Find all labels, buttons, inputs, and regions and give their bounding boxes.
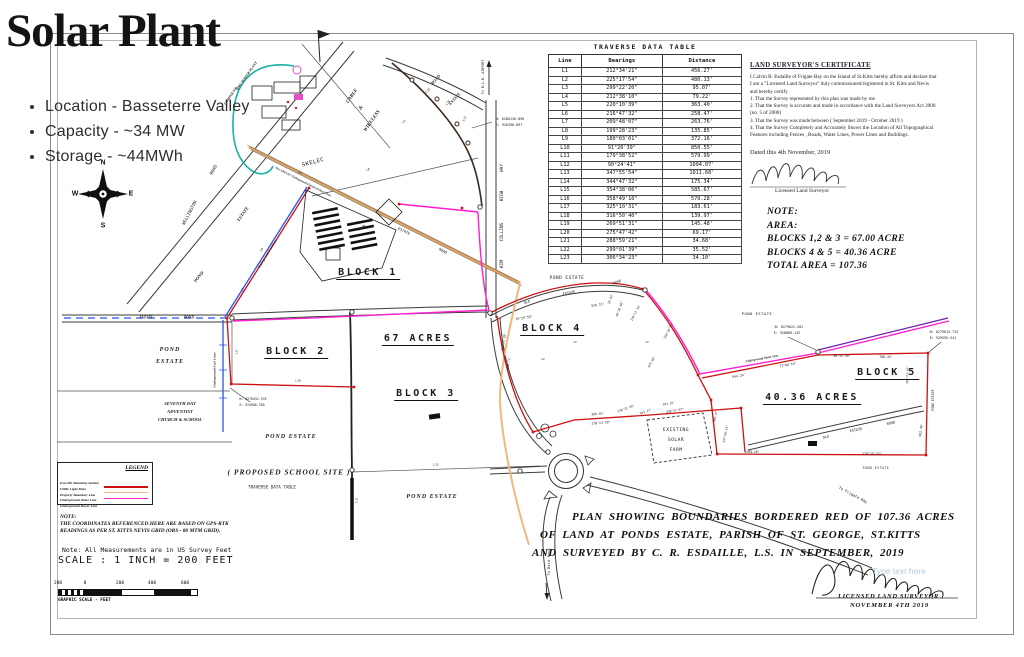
certificate-line: and hereby certify (750, 89, 976, 96)
table-row: L9180°03'01"372.16' (549, 136, 742, 145)
scale-tick: 600 (181, 581, 189, 586)
plan-statement-line: AND SURVEYED BY C. R. ESDAILLE, L.S. IN … (532, 544, 955, 562)
legend-title: LEGEND (62, 465, 148, 471)
table-row: L16358°49'10"570.28' (549, 195, 742, 204)
certificate-line: 4. That the Survey Completely and Accura… (750, 125, 976, 132)
licensed-surveyor-label: LICENSED LAND SURVEYOR (838, 593, 939, 600)
gps-note-line: NOTE: (60, 514, 229, 521)
table-row: L8199°28'23"135.85' (549, 127, 742, 136)
scale-bar: 2000200400600 GRAPHIC SCALE - FEET (58, 581, 198, 603)
table-row: L11179°38'52"579.99' (549, 153, 742, 162)
scale-tick: 200 (54, 581, 62, 586)
area-note-line: TOTAL AREA = 107.36 (767, 260, 905, 274)
table-row: L22299°01'39"35.52' (549, 246, 742, 255)
certificate-signature (752, 164, 839, 184)
type-text-watermark: Type text here (872, 566, 926, 576)
compass-w: W (72, 191, 79, 198)
area-note: NOTE:AREA:BLOCKS 1,2 & 3 = 67.00 ACREBLO… (767, 206, 905, 274)
table-row: L17325°10'31"183.61' (549, 204, 742, 213)
slide: BMC POWER PLANTCOMPOUNDCABLE&WIRELESSROA… (0, 0, 1024, 657)
table-row: L15354°38'06"585.67' (549, 187, 742, 196)
survey-date-label: NOVEMBER 4TH 2019 (850, 602, 929, 609)
scale-bar-caption: GRAPHIC SCALE - FEET (58, 598, 198, 603)
bullet-item: Capacity - ~34 MW (45, 123, 250, 141)
scale-tick: 200 (116, 581, 124, 586)
certificate-line: Features including Fences , Roads, Water… (750, 132, 976, 139)
table-row: L1212°34'21"456.27' (549, 68, 742, 77)
gps-note-line: READINGS AS PER ST. KITTS NEVIS GRID (OR… (60, 528, 229, 535)
scale-bar-ticks: 2000200400600 (58, 581, 198, 588)
table-row: L6216°47'32"258.47' (549, 110, 742, 119)
certificate-heading: LAND SURVEYOR'S CERTIFICATE (750, 62, 976, 69)
table-row: L20275°47'42"69.17' (549, 229, 742, 238)
certificate-line: 3. That the Survey was made between ( Se… (750, 118, 976, 125)
table-row: L23306°34'23"34.10' (549, 255, 742, 264)
plan-statement-line: OF LAND AT PONDS ESTATE, PARISH OF ST. G… (532, 526, 955, 544)
bullet-item: Location - Basseterre Valley (45, 98, 250, 116)
plan-statement-line: PLAN SHOWING BOUNDARIES BORDERED RED OF … (532, 508, 955, 526)
scale-tick: 0 (84, 581, 87, 586)
certificate-line: I am a "Licensed Land Surveyor" duly com… (750, 81, 976, 88)
table-row: L18316°50'40"139.97' (549, 212, 742, 221)
traverse-table-title: TRAVERSE DATA TABLE (548, 43, 742, 51)
compass-s: S (101, 223, 106, 230)
column-header: Bearings (581, 55, 662, 68)
certificate-line: 2. That the Survey is accurate and made … (750, 103, 976, 110)
table-row: L14344°47'32"175.34' (549, 178, 742, 187)
bullet-list: Location - Basseterre ValleyCapacity - ~… (30, 98, 250, 173)
table-row: L2225°17'54"480.13' (549, 76, 742, 85)
compass-e: E (129, 191, 134, 198)
certificate-line: I Calvin R. Esdaille of Frigate Bay on t… (750, 74, 976, 81)
legend-swatch (104, 498, 148, 499)
table-row: L19269°51'31"145.48' (549, 221, 742, 230)
scale-tick: 400 (148, 581, 156, 586)
column-header: Distance (662, 55, 741, 68)
legend-item: Underground Power Line (60, 495, 150, 501)
traverse-data-table: TRAVERSE DATA TABLE LineBearingsDistance… (548, 43, 742, 264)
table-row: L1290°24'41"1094.07' (549, 161, 742, 170)
table-row: L7209°48'07"263.76' (549, 119, 742, 128)
plan-statement: PLAN SHOWING BOUNDARIES BORDERED RED OF … (532, 508, 955, 562)
table-row: L1091°20'39"850.55' (549, 144, 742, 153)
page-title: Solar Plant (6, 4, 220, 58)
bullet-item: Storage - ~44MWh (45, 148, 250, 166)
table-row: L3299°22'20"95.07' (549, 85, 742, 94)
table-row: L21288°59'21"34.68' (549, 238, 742, 247)
scale-statement: SCALE : 1 INCH = 200 FEET (58, 555, 234, 566)
table-row: L4212°38'10"79.22' (549, 93, 742, 102)
traverse-table-header: LineBearingsDistance (549, 55, 742, 68)
legend-swatch (104, 492, 148, 493)
column-header: Line (549, 55, 582, 68)
area-note-line: BLOCKS 1,2 & 3 = 67.00 ACRE (767, 233, 905, 247)
certificate-line: 1. That the Survey represented by this p… (750, 96, 976, 103)
area-note-line: NOTE: (767, 206, 905, 220)
traverse-table-body: L1212°34'21"456.27'L2225°17'54"480.13'L3… (549, 68, 742, 264)
area-note-line: BLOCKS 4 & 5 = 40.36 ACRE (767, 247, 905, 261)
certificate-signature-label: Licensed Land Surveyor (775, 188, 829, 194)
measurements-note: Note: All Measurements are in US Survey … (62, 546, 231, 554)
surveyor-certificate: LAND SURVEYOR'S CERTIFICATE I Calvin R. … (750, 62, 976, 156)
table-row: L5220°10'39"363.40' (549, 102, 742, 111)
certificate-line: (no. 5 of 2000) (750, 110, 976, 117)
table-row: L13347°55'54"1011.68' (549, 170, 742, 179)
certificate-body: I Calvin R. Esdaille of Frigate Bay on t… (750, 74, 976, 140)
legend: LEGEND Iron Pin Boundary markerUtility L… (57, 462, 153, 505)
gps-note: NOTE:THE COORDINATES REFERENCED HERE ARE… (60, 514, 229, 536)
area-note-line: AREA: (767, 220, 905, 234)
certificate-dated: Dated this 4th November, 2019 (750, 149, 976, 156)
legend-swatch (104, 486, 148, 487)
scale-bar-graphic (58, 589, 198, 596)
